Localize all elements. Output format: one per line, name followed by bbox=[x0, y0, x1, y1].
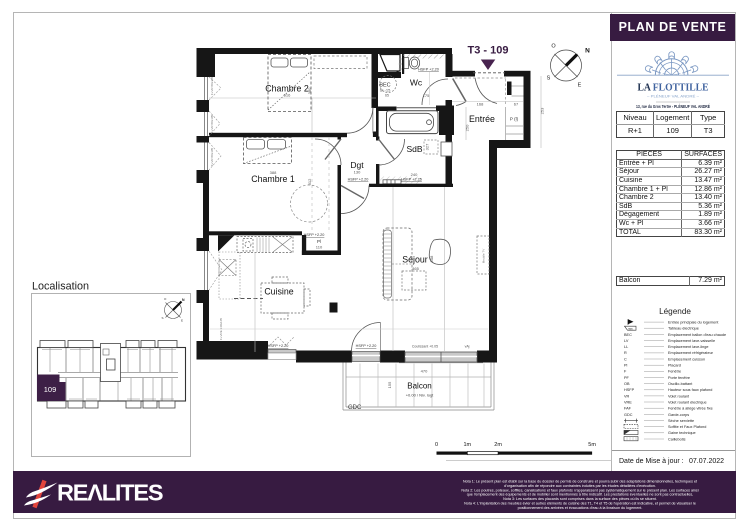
svg-text:REΛLITES: REΛLITES bbox=[57, 480, 163, 506]
svg-text:312: 312 bbox=[307, 178, 312, 185]
svg-text:327: 327 bbox=[425, 143, 430, 150]
svg-text:Chambre 1: Chambre 1 bbox=[251, 174, 295, 184]
svg-text:F+VR 80x105: F+VR 80x105 bbox=[210, 147, 214, 166]
svg-text:E: E bbox=[578, 83, 582, 89]
svg-text:BEC: BEC bbox=[624, 333, 632, 337]
svg-text:Balcon: Balcon bbox=[407, 382, 431, 391]
svg-text:Volet roulant électrique: Volet roulant électrique bbox=[668, 401, 707, 405]
svg-text:470: 470 bbox=[421, 369, 428, 374]
svg-text:Pl: Pl bbox=[317, 239, 321, 244]
svg-text:Fenêtre: Fenêtre bbox=[668, 370, 681, 374]
svg-text:Emplacement lave-vaisselle: Emplacement lave-vaisselle bbox=[668, 339, 715, 343]
svg-text:Fenêtre à allège vitrée fixe: Fenêtre à allège vitrée fixe bbox=[668, 407, 713, 411]
svg-text:SdB: SdB bbox=[406, 144, 422, 154]
svg-text:Garde-corps: Garde-corps bbox=[668, 413, 689, 417]
svg-text:GDC: GDC bbox=[624, 413, 633, 417]
svg-text:HSFP +2.20: HSFP +2.20 bbox=[268, 344, 289, 348]
svg-text:67: 67 bbox=[514, 102, 519, 107]
svg-text:Oscillo-battant: Oscillo-battant bbox=[668, 382, 693, 386]
svg-text:HSFP +2.20: HSFP +2.20 bbox=[304, 233, 325, 237]
svg-text:+0.00 / Niv. logt: +0.00 / Niv. logt bbox=[406, 393, 434, 398]
svg-text:TABL: TABL bbox=[628, 328, 634, 331]
svg-text:Cuisine: Cuisine bbox=[264, 287, 293, 297]
svg-text:Emplacement ballon d'eau chaud: Emplacement ballon d'eau chaude bbox=[668, 333, 726, 337]
svg-text:Meuble TV: Meuble TV bbox=[482, 249, 486, 263]
svg-text:Légende: Légende bbox=[659, 307, 691, 316]
svg-text:P (l): P (l) bbox=[510, 117, 519, 122]
svg-text:O: O bbox=[551, 44, 556, 50]
svg-text:Séjour: Séjour bbox=[402, 255, 427, 265]
svg-text:Tableau électrique: Tableau électrique bbox=[668, 327, 699, 331]
svg-text:168: 168 bbox=[477, 102, 484, 107]
svg-text:Volet roulant: Volet roulant bbox=[668, 394, 690, 398]
svg-text:Coulissant +0.05: Coulissant +0.05 bbox=[412, 345, 438, 349]
svg-text:253: 253 bbox=[540, 107, 545, 114]
svg-text:380: 380 bbox=[307, 87, 312, 94]
svg-text:Hauteur sous faux plafond: Hauteur sous faux plafond bbox=[668, 388, 712, 392]
svg-text:Localisation: Localisation bbox=[32, 281, 89, 293]
svg-text:Wc: Wc bbox=[410, 78, 423, 88]
svg-text:OB: OB bbox=[624, 382, 630, 386]
svg-text:HSFP +2.20: HSFP +2.20 bbox=[418, 68, 439, 72]
svg-text:155: 155 bbox=[387, 381, 392, 388]
svg-text:VRE: VRE bbox=[624, 401, 632, 405]
svg-text:Nota 3: Les surfaces des placa: Nota 3: Les surfaces des placards sont c… bbox=[503, 497, 657, 501]
svg-text:0: 0 bbox=[435, 442, 438, 448]
svg-text:Emplacement lave-linge: Emplacement lave-linge bbox=[668, 345, 709, 349]
svg-text:Soffite et Faux Plafond: Soffite et Faux Plafond bbox=[668, 425, 706, 429]
svg-text:N: N bbox=[182, 298, 185, 302]
svg-text:508: 508 bbox=[429, 255, 434, 262]
svg-text:Emplacement réfrigérateur: Emplacement réfrigérateur bbox=[668, 351, 714, 355]
svg-text:S: S bbox=[547, 76, 551, 82]
svg-text:175: 175 bbox=[423, 93, 430, 98]
svg-text:C: C bbox=[624, 357, 627, 361]
svg-text:Entrée principale du logement: Entrée principale du logement bbox=[668, 321, 719, 325]
svg-text:240: 240 bbox=[411, 172, 418, 177]
svg-text:– PLÉNEUF VAL ANDRÉ –: – PLÉNEUF VAL ANDRÉ – bbox=[647, 94, 699, 99]
svg-text:465: 465 bbox=[412, 266, 419, 271]
svg-text:Sèche serviette: Sèche serviette bbox=[668, 419, 694, 423]
svg-text:R: R bbox=[624, 351, 627, 355]
svg-text:5m: 5m bbox=[588, 442, 596, 448]
svg-text:HSFP: HSFP bbox=[624, 388, 635, 392]
svg-text:HSFP +2.25: HSFP +2.25 bbox=[401, 178, 422, 182]
svg-text:13, rue du Gros Tertre - PLÉNE: 13, rue du Gros Tertre - PLÉNEUF VAL AND… bbox=[636, 104, 710, 109]
svg-text:FAF: FAF bbox=[624, 407, 632, 411]
svg-text:1m: 1m bbox=[463, 442, 471, 448]
svg-text:F+VR 80x105: F+VR 80x105 bbox=[210, 76, 214, 95]
svg-text:F+VRE 140x105: F+VRE 140x105 bbox=[219, 318, 223, 340]
svg-text:N: N bbox=[585, 48, 590, 55]
svg-text:d'organisation afin de répondr: d'organisation afin de répondre aux cont… bbox=[504, 484, 656, 488]
svg-text:Nota 2: Les poutres, poteaux,: Nota 2: Les poutres, poteaux, soffites, … bbox=[461, 488, 698, 492]
svg-text:PF: PF bbox=[624, 376, 630, 380]
svg-text:516: 516 bbox=[284, 93, 291, 98]
svg-text:2m: 2m bbox=[494, 442, 502, 448]
svg-text:LA FLOTTILLE: LA FLOTTILLE bbox=[638, 82, 709, 94]
svg-text:T3 - 109: T3 - 109 bbox=[468, 45, 509, 57]
svg-text:O: O bbox=[164, 297, 167, 301]
svg-text:GDC: GDC bbox=[348, 405, 362, 411]
svg-text:HSFP +2.20: HSFP +2.20 bbox=[348, 178, 369, 182]
svg-text:F+VR 80x105: F+VR 80x105 bbox=[210, 114, 214, 133]
svg-text:250: 250 bbox=[465, 124, 470, 131]
svg-text:Caillebotis: Caillebotis bbox=[668, 437, 686, 441]
svg-text:E: E bbox=[181, 319, 183, 323]
svg-text:VR: VR bbox=[624, 394, 630, 398]
svg-text:Entrée: Entrée bbox=[469, 114, 495, 124]
svg-text:Porte fenêtre: Porte fenêtre bbox=[668, 376, 690, 380]
svg-text:LL: LL bbox=[624, 345, 628, 349]
svg-text:Gaine technique: Gaine technique bbox=[668, 431, 696, 435]
svg-text:Emplacement cuisson: Emplacement cuisson bbox=[668, 357, 705, 361]
svg-text:que l'emplacement des équipeme: que l'emplacement des équipements et de … bbox=[467, 493, 694, 497]
svg-text:Nota 1: Le présent plan est ét: Nota 1: Le présent plan est établi sur l… bbox=[463, 480, 697, 484]
svg-text:109: 109 bbox=[44, 385, 57, 394]
svg-text:S: S bbox=[162, 316, 164, 320]
svg-text:65: 65 bbox=[385, 94, 389, 98]
svg-text:110: 110 bbox=[316, 245, 323, 250]
svg-text:vAj: vAj bbox=[465, 345, 470, 349]
svg-text:positionnement des arrivées et: positionnement des arrivées et évacuatio… bbox=[518, 506, 643, 510]
svg-text:HSFP +2.20: HSFP +2.20 bbox=[356, 344, 377, 348]
svg-text:Dgt: Dgt bbox=[350, 160, 364, 170]
svg-text:Placard: Placard bbox=[668, 364, 681, 368]
svg-text:LV: LV bbox=[624, 339, 629, 343]
svg-text:388: 388 bbox=[270, 170, 277, 175]
svg-text:Pl: Pl bbox=[624, 364, 628, 368]
svg-text:130: 130 bbox=[354, 170, 361, 175]
svg-text:F: F bbox=[624, 370, 627, 374]
svg-text:Nota 4: L'implantation des meu: Nota 4: L'implantation des meubles évier… bbox=[464, 502, 696, 506]
svg-text:SL-15: SL-15 bbox=[380, 88, 391, 93]
